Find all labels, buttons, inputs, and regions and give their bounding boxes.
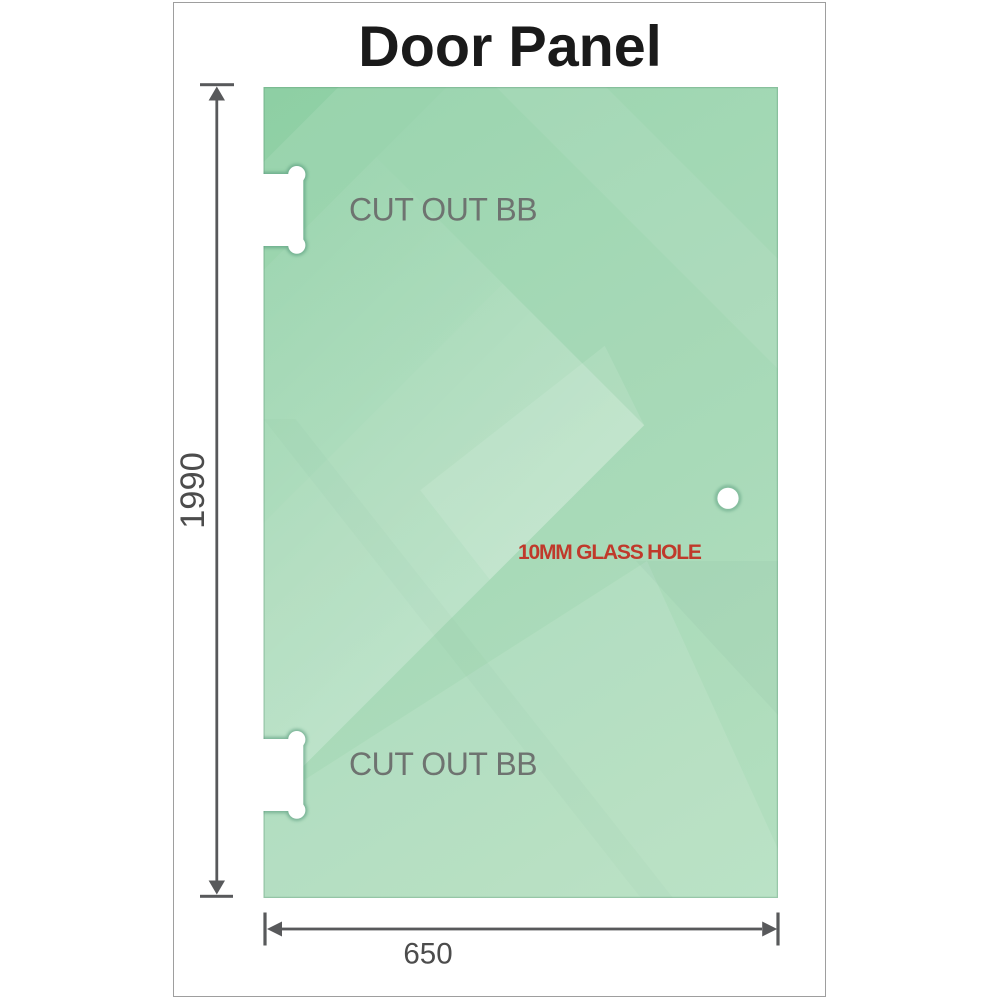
svg-text:1990: 1990 <box>174 452 212 529</box>
svg-text:CUT OUT BB: CUT OUT BB <box>349 746 537 782</box>
svg-text:CUT OUT BB: CUT OUT BB <box>349 192 537 228</box>
svg-text:10MM GLASS HOLE: 10MM GLASS HOLE <box>518 541 702 564</box>
svg-text:650: 650 <box>403 938 452 971</box>
svg-text:Door Panel: Door Panel <box>358 15 662 79</box>
